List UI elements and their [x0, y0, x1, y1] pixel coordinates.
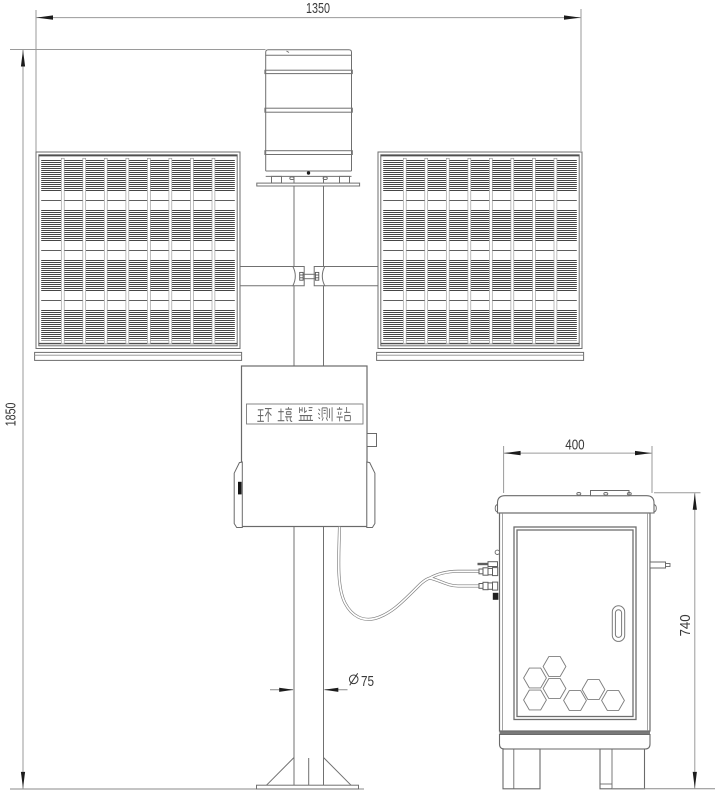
- svg-text:740: 740: [677, 614, 694, 636]
- svg-text:75: 75: [361, 673, 374, 690]
- svg-text:400: 400: [565, 436, 584, 453]
- svg-text:1350: 1350: [306, 0, 330, 17]
- svg-text:1850: 1850: [2, 403, 19, 427]
